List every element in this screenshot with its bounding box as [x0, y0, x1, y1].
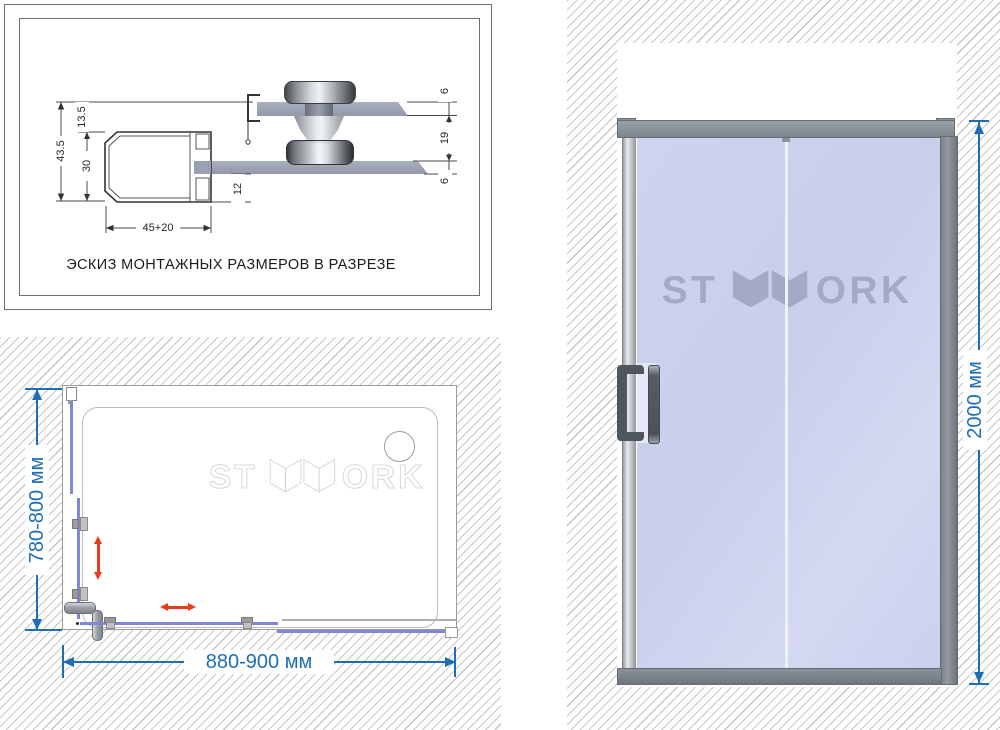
side-roller-2a: [72, 589, 79, 599]
slide-arrow-horizontal-line: [167, 606, 189, 609]
profile-clamp-bottom: [196, 178, 209, 200]
section-sketch-panel: 43.5 13.5 30 45+20 12 6 19 6 ЭСКИЗ МОНТА…: [4, 4, 492, 310]
watermark-text-st: ST: [209, 459, 258, 494]
slide-arrow-vertical-up: [94, 536, 102, 544]
watermark-fold-mark: [733, 270, 807, 307]
frame-bottom-bar: [617, 668, 942, 685]
dim-label-lower-glass: 6: [438, 170, 452, 192]
depth-dim-tick-bottom: [25, 629, 62, 631]
dim-label-glass-inset: 12: [231, 174, 245, 204]
dim-label-profile-height: 30: [80, 151, 94, 181]
front-roller-1b: [106, 622, 115, 629]
clip-pin-ball: [246, 140, 250, 144]
width-dim-arrow-left: [63, 657, 74, 667]
depth-dim-label: 780-800 мм: [25, 445, 49, 575]
glass-in-profile-slot: [194, 161, 211, 174]
front-fixed-rail-line: [282, 619, 456, 621]
dim-label-upper-glass: 6: [438, 80, 452, 102]
door-handle-bracket: [617, 365, 644, 441]
front-fixed-end-cap: [445, 627, 458, 638]
side-roller-1a: [72, 519, 79, 529]
side-fixed-glass-line: [70, 401, 73, 494]
product-dimension-sheet: 43.5 13.5 30 45+20 12 6 19 6 ЭСКИЗ МОНТА…: [0, 0, 1000, 730]
dim-label-profile-width: 45+20: [136, 221, 180, 235]
door-opening: ST ORKI: [617, 43, 957, 687]
roller-wheel: [286, 140, 354, 165]
height-dim-tick-bottom: [969, 683, 989, 685]
height-dim-arrow-down: [974, 672, 984, 683]
frame-top-bar: [617, 120, 955, 138]
depth-dim-arrow-up: [32, 389, 42, 400]
slide-arrow-vertical-line: [97, 543, 100, 573]
width-dim-arrow-right: [445, 657, 456, 667]
corner-pivot-dot: [76, 622, 79, 625]
dim-label-top-offset: 13.5: [75, 102, 89, 132]
section-front-view: ST ORKI: [567, 0, 1000, 730]
height-dim-label: 2000 мм: [963, 350, 987, 450]
stworki-watermark-outline: ST ORKI: [207, 456, 427, 494]
glass-divider-line: [785, 136, 788, 668]
wall-bracket-plan: [66, 387, 77, 401]
watermark-text-st: ST: [662, 269, 719, 310]
frame-right-bar: [940, 136, 958, 685]
glass-clip: [248, 95, 260, 121]
shower-tray-plan: ST ORKI: [62, 385, 457, 630]
depth-dim-arrow-down: [32, 619, 42, 630]
slide-arrow-horizontal-left: [160, 603, 168, 611]
watermark-fold-mark: [270, 460, 334, 492]
door-glass: [637, 136, 940, 668]
front-fixed-glass-line: [277, 630, 447, 633]
depth-dim-tick-top: [25, 388, 62, 390]
watermark-text-orki: ORKI: [342, 459, 427, 494]
corner-handle-vertical: [92, 610, 103, 641]
front-roller-2b: [243, 622, 252, 629]
side-roller-1b: [80, 517, 88, 531]
roller-shaft: [305, 102, 333, 116]
width-dim-label: 880-900 мм: [184, 650, 334, 674]
height-dim-arrow-up: [974, 123, 984, 134]
corner-handle-horizontal: [64, 602, 96, 614]
watermark-text-orki: ORKI: [816, 269, 915, 310]
profile-clamp-top: [196, 134, 209, 149]
dim-label-roller-gap: 19: [438, 123, 452, 153]
roller-adjust-knob: [284, 81, 356, 104]
section-plan-view: ST ORKI: [0, 337, 501, 730]
slide-arrow-horizontal-right: [188, 603, 196, 611]
sketch-title: ЭСКИЗ МОНТАЖНЫХ РАЗМЕРОВ В РАЗРЕЗЕ: [5, 257, 457, 273]
slide-arrow-vertical-down: [94, 572, 102, 580]
door-handle-bar: [648, 365, 660, 444]
side-roller-2b: [80, 587, 88, 601]
dim-label-overall-height: 43.5: [54, 136, 68, 166]
